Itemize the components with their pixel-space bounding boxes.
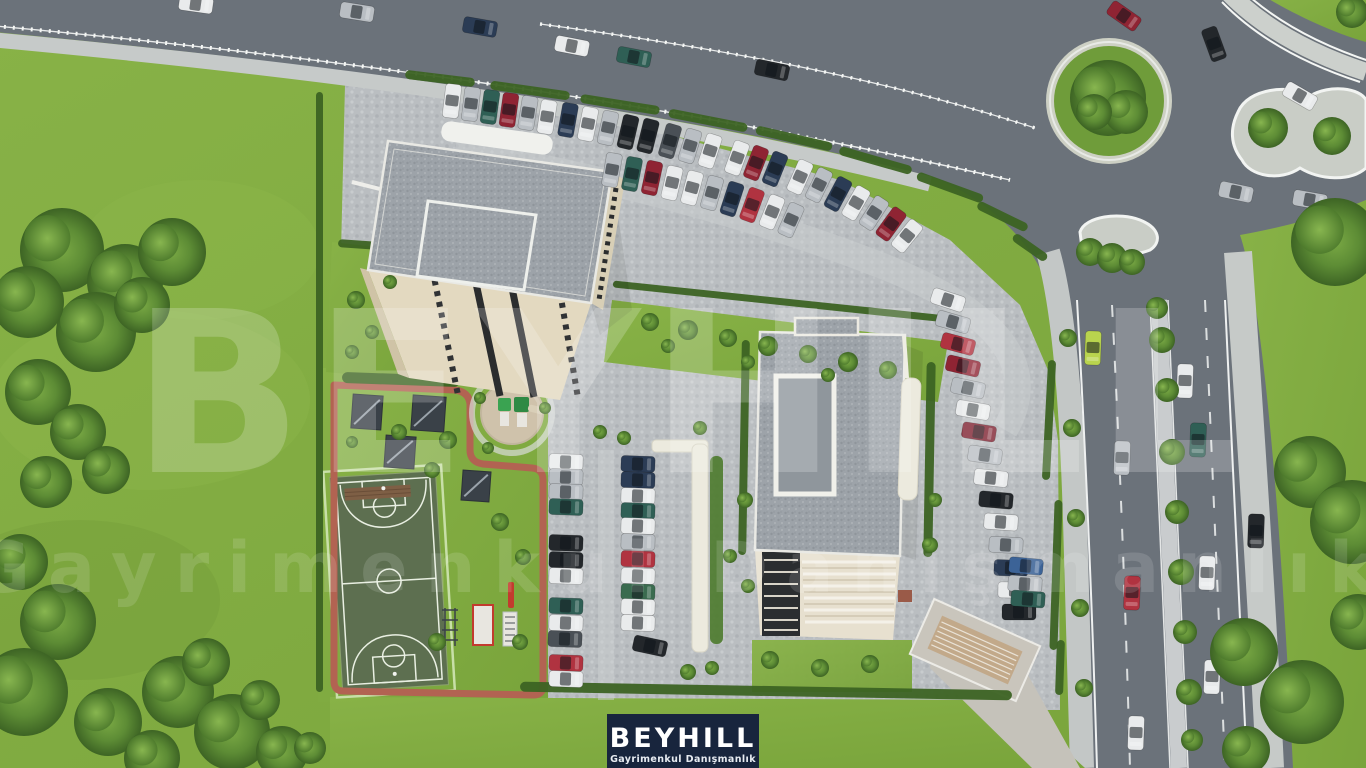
car	[548, 630, 583, 647]
tree-highlight	[513, 635, 522, 644]
tree-highlight	[1224, 730, 1250, 756]
tree-highlight	[24, 215, 70, 261]
car	[549, 614, 584, 631]
tree-highlight	[1078, 97, 1098, 117]
car	[549, 654, 584, 671]
tree-highlight	[681, 665, 690, 674]
tree-highlight	[1174, 622, 1187, 635]
tree-highlight	[198, 700, 240, 742]
logo: BEYHILL Gayrimenkul Danışmanlık	[607, 714, 759, 768]
tree-highlight	[8, 365, 44, 401]
logo-subtitle: Gayrimenkul Danışmanlık	[610, 754, 756, 765]
tree-highlight	[1182, 731, 1194, 743]
tree-highlight	[1177, 681, 1191, 695]
tree-highlight	[1295, 205, 1343, 253]
tree-highlight	[77, 694, 114, 731]
tree-highlight	[146, 662, 186, 702]
tree-highlight	[184, 642, 210, 668]
tree-highlight	[706, 662, 714, 670]
car	[621, 614, 656, 631]
tree-highlight	[23, 460, 52, 489]
tree-highlight	[1099, 246, 1116, 262]
tree-highlight	[1213, 624, 1250, 661]
tree-highlight	[259, 730, 288, 759]
tree-highlight	[127, 735, 158, 766]
tree-highlight	[1076, 681, 1086, 691]
tree-highlight	[60, 299, 104, 343]
tree-highlight	[1278, 442, 1318, 482]
watermark: BEYHILL Gayrimenkul Danışmanlık	[0, 264, 1366, 609]
watermark-line2: Gayrimenkul Danışmanlık	[0, 527, 1366, 609]
tree-highlight	[429, 635, 439, 645]
car	[549, 670, 584, 687]
site-plan-svg: BEYHILL Gayrimenkul Danışmanlık BEYHILL …	[0, 0, 1366, 768]
tree-highlight	[862, 657, 872, 667]
tree-highlight	[1250, 111, 1272, 133]
aerial-render: BEYHILL Gayrimenkul Danışmanlık BEYHILL …	[0, 0, 1366, 768]
watermark-line1: BEYHILL	[132, 264, 1249, 526]
tree-highlight	[242, 683, 264, 705]
tree-highlight	[762, 653, 772, 663]
car	[1127, 716, 1144, 751]
tree-highlight	[296, 735, 314, 753]
tree-highlight	[1315, 120, 1336, 141]
tree-highlight	[1077, 240, 1092, 255]
tree-highlight	[53, 409, 84, 440]
tree-highlight	[1264, 667, 1310, 713]
logo-name: BEYHILL	[610, 723, 757, 754]
tree-highlight	[141, 224, 178, 261]
tree-highlight	[84, 450, 110, 476]
tree-highlight	[812, 661, 822, 671]
